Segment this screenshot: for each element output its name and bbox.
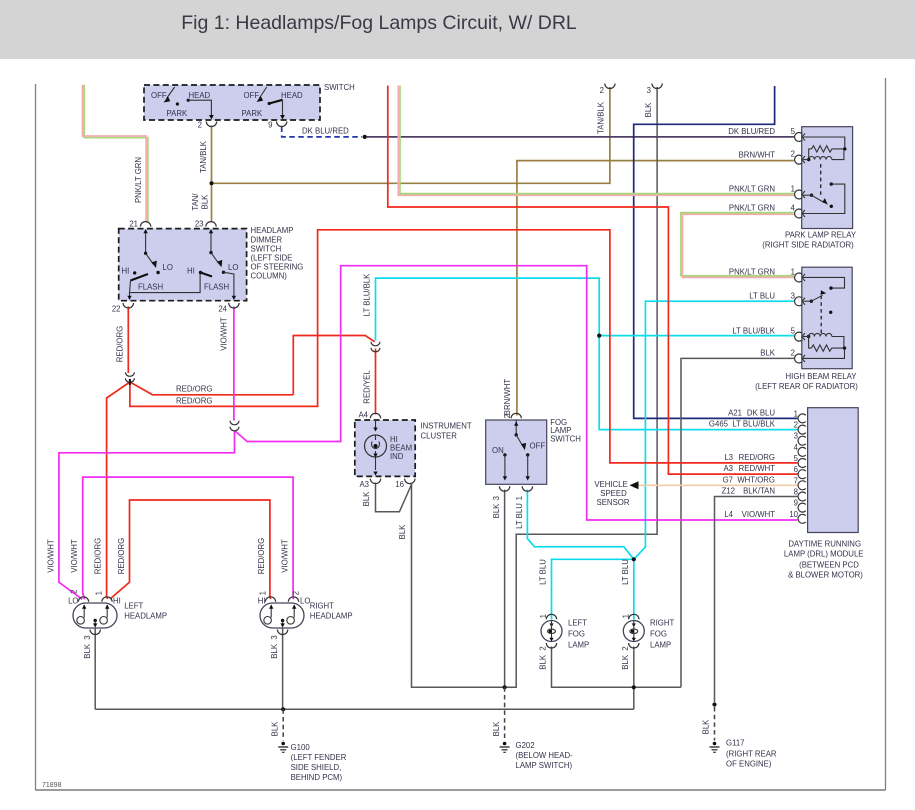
svg-text:A21: A21: [728, 409, 742, 418]
svg-text:HIGH BEAM RELAY: HIGH BEAM RELAY: [786, 372, 858, 381]
svg-text:BLK/TAN: BLK/TAN: [743, 487, 775, 496]
svg-text:RIGHT: RIGHT: [650, 619, 674, 628]
svg-text:HEADLAMP: HEADLAMP: [251, 226, 294, 235]
svg-text:VIO/WHT: VIO/WHT: [70, 539, 79, 573]
svg-text:LT BLU: LT BLU: [539, 559, 548, 585]
svg-text:PNK/LT GRN: PNK/LT GRN: [134, 157, 143, 203]
svg-text:FOG: FOG: [568, 630, 585, 639]
svg-text:8: 8: [794, 488, 798, 497]
svg-text:G7: G7: [723, 475, 733, 484]
svg-text:RED/ORG: RED/ORG: [176, 385, 212, 394]
svg-text:HEAD: HEAD: [281, 91, 303, 100]
svg-text:IND: IND: [390, 452, 404, 461]
svg-text:FOG: FOG: [650, 630, 667, 639]
svg-text:LT BLU: LT BLU: [749, 291, 775, 300]
svg-text:DIMMER: DIMMER: [251, 236, 283, 245]
svg-text:BLK 3: BLK 3: [270, 635, 279, 658]
svg-text:71898: 71898: [42, 782, 62, 789]
svg-text:2: 2: [794, 421, 798, 430]
svg-text:BLK: BLK: [362, 491, 371, 507]
svg-text:ON: ON: [492, 446, 504, 455]
svg-text:RED/ORG: RED/ORG: [176, 396, 212, 405]
svg-text:BLK: BLK: [492, 503, 501, 519]
svg-text:5: 5: [791, 127, 796, 136]
svg-text:2: 2: [600, 86, 604, 95]
svg-text:3: 3: [492, 496, 501, 500]
svg-text:BRN/WHT: BRN/WHT: [503, 379, 512, 416]
svg-text:1: 1: [794, 409, 798, 418]
svg-text:HI: HI: [122, 267, 130, 276]
svg-text:VIO/WHT: VIO/WHT: [220, 317, 229, 351]
svg-text:TAN/BLK: TAN/BLK: [199, 140, 208, 173]
svg-text:1: 1: [791, 268, 795, 277]
svg-text:LT BLU: LT BLU: [515, 503, 524, 529]
svg-text:COLUMN): COLUMN): [251, 272, 288, 281]
svg-text:LT BLU/BLK: LT BLU/BLK: [732, 420, 775, 429]
svg-text:PARK: PARK: [242, 109, 263, 118]
svg-text:BLK 3: BLK 3: [83, 635, 92, 658]
svg-text:1: 1: [515, 496, 524, 500]
svg-text:G117: G117: [726, 739, 745, 748]
svg-text:Z12: Z12: [722, 487, 735, 496]
svg-text:A3: A3: [723, 464, 733, 473]
svg-text:2: 2: [791, 349, 795, 358]
svg-text:3: 3: [791, 291, 795, 300]
svg-text:22: 22: [112, 305, 121, 314]
svg-text:4: 4: [791, 204, 796, 213]
svg-text:(BELOW HEAD-: (BELOW HEAD-: [516, 751, 574, 760]
svg-text:2: 2: [292, 591, 301, 595]
svg-text:BLK: BLK: [760, 349, 776, 358]
svg-text:7: 7: [794, 476, 798, 485]
svg-text:HEAD: HEAD: [189, 91, 211, 100]
svg-text:BLK 2: BLK 2: [539, 646, 548, 669]
svg-text:HI: HI: [258, 596, 266, 605]
svg-text:(LEFT SIDE: (LEFT SIDE: [251, 254, 293, 263]
svg-text:23: 23: [195, 220, 204, 229]
svg-text:BLK: BLK: [492, 721, 501, 737]
svg-text:DK BLU: DK BLU: [747, 409, 776, 418]
svg-text:LO: LO: [300, 596, 310, 605]
svg-text:VEHICLE: VEHICLE: [594, 480, 627, 489]
svg-text:PNK/LT GRN: PNK/LT GRN: [729, 204, 775, 213]
svg-text:LO: LO: [228, 263, 238, 272]
svg-text:RED/ORG: RED/ORG: [117, 538, 126, 574]
svg-text:16: 16: [395, 480, 404, 489]
svg-text:PARK LAMP RELAY: PARK LAMP RELAY: [785, 231, 857, 240]
svg-text:3: 3: [794, 432, 798, 441]
svg-text:9: 9: [268, 121, 272, 130]
svg-text:PNK/LT GRN: PNK/LT GRN: [729, 185, 775, 194]
svg-text:4: 4: [794, 443, 799, 452]
svg-text:DK BLU/RED: DK BLU/RED: [728, 127, 775, 136]
svg-text:DK BLU/RED: DK BLU/RED: [302, 127, 349, 136]
svg-text:3: 3: [647, 86, 651, 95]
svg-text:SWITCH: SWITCH: [251, 245, 282, 254]
svg-text:LAMP SWITCH): LAMP SWITCH): [516, 761, 573, 770]
svg-text:G465: G465: [709, 420, 729, 429]
svg-text:RED/YEL: RED/YEL: [363, 370, 372, 404]
svg-text:G100: G100: [291, 743, 311, 752]
svg-text:HI: HI: [187, 267, 195, 276]
svg-text:LEFT: LEFT: [568, 619, 587, 628]
svg-text:1: 1: [95, 591, 104, 595]
svg-text:TAN/: TAN/: [191, 193, 200, 211]
svg-text:L4: L4: [724, 510, 733, 519]
svg-text:LO: LO: [68, 596, 78, 605]
svg-text:(LEFT REAR OF RADIATOR): (LEFT REAR OF RADIATOR): [755, 382, 858, 391]
svg-text:RIGHT: RIGHT: [310, 602, 334, 611]
svg-text:LAMP: LAMP: [568, 641, 589, 650]
svg-text:OFF: OFF: [530, 441, 546, 450]
svg-text:BRN/WHT: BRN/WHT: [739, 151, 776, 160]
svg-text:LO: LO: [163, 263, 173, 272]
svg-text:(BETWEEN PCD: (BETWEEN PCD: [799, 561, 859, 570]
svg-text:1: 1: [791, 185, 795, 194]
svg-text:TAN/BLK: TAN/BLK: [597, 101, 606, 134]
svg-text:RED/WHT: RED/WHT: [739, 464, 776, 473]
svg-text:9: 9: [794, 499, 798, 508]
svg-text:LAMP (DRL) MODULE: LAMP (DRL) MODULE: [784, 550, 864, 559]
svg-text:LT BLU/BLK: LT BLU/BLK: [363, 273, 372, 316]
svg-text:FLASH: FLASH: [204, 283, 229, 292]
svg-text:2: 2: [791, 150, 795, 159]
svg-text:BLK 2: BLK 2: [621, 646, 630, 669]
svg-text:1: 1: [539, 614, 548, 618]
svg-text:INSTRUMENT: INSTRUMENT: [421, 422, 472, 431]
svg-text:1: 1: [259, 591, 268, 595]
svg-text:OF STEERING: OF STEERING: [251, 263, 304, 272]
svg-text:BLK: BLK: [702, 719, 711, 735]
svg-text:5: 5: [794, 454, 799, 463]
svg-text:& BLOWER MOTOR): & BLOWER MOTOR): [788, 571, 863, 580]
svg-text:OFF: OFF: [151, 91, 167, 100]
svg-text:RED/ORG: RED/ORG: [116, 326, 125, 362]
svg-text:6: 6: [794, 465, 798, 474]
svg-text:BLK: BLK: [644, 102, 653, 118]
svg-text:PARK: PARK: [167, 109, 188, 118]
svg-text:RED/ORG: RED/ORG: [739, 453, 775, 462]
svg-text:2: 2: [198, 121, 202, 130]
svg-text:LT BLU/BLK: LT BLU/BLK: [732, 327, 775, 336]
svg-text:SENSOR: SENSOR: [597, 498, 630, 507]
svg-text:FLASH: FLASH: [138, 283, 163, 292]
svg-text:A4: A4: [358, 411, 368, 420]
svg-text:SIDE SHIELD,: SIDE SHIELD,: [291, 763, 342, 772]
svg-text:(RIGHT REAR: (RIGHT REAR: [726, 750, 777, 759]
svg-text:DAYTIME RUNNING: DAYTIME RUNNING: [788, 540, 861, 549]
svg-text:VIO/WHT: VIO/WHT: [281, 539, 290, 573]
svg-text:(RIGHT SIDE RADIATOR): (RIGHT SIDE RADIATOR): [762, 241, 854, 250]
svg-text:24: 24: [218, 305, 227, 314]
svg-text:HEADLAMP: HEADLAMP: [310, 612, 353, 621]
svg-text:Fig 1: Headlamps/Fog Lamps Cir: Fig 1: Headlamps/Fog Lamps Circuit, W/ D…: [181, 12, 577, 34]
svg-text:OFF: OFF: [244, 91, 260, 100]
svg-text:HEADLAMP: HEADLAMP: [124, 612, 167, 621]
svg-text:OF ENGINE): OF ENGINE): [726, 760, 772, 769]
svg-text:HI: HI: [113, 596, 121, 605]
svg-text:LT BLU: LT BLU: [621, 559, 630, 585]
svg-text:BLK: BLK: [398, 524, 407, 540]
svg-text:10: 10: [789, 510, 798, 519]
svg-text:BEHIND PCM): BEHIND PCM): [291, 773, 343, 782]
svg-text:1: 1: [622, 614, 631, 618]
svg-text:SWITCH: SWITCH: [550, 434, 581, 443]
svg-text:CLUSTER: CLUSTER: [421, 432, 458, 441]
svg-text:A3: A3: [359, 480, 369, 489]
svg-text:VIO/WHT: VIO/WHT: [47, 539, 56, 573]
svg-text:2: 2: [70, 590, 79, 594]
svg-text:SPEED: SPEED: [600, 489, 627, 498]
svg-text:BLK: BLK: [271, 721, 280, 737]
svg-text:RED/ORG: RED/ORG: [257, 538, 266, 574]
svg-text:LAMP: LAMP: [650, 641, 671, 650]
svg-text:(LEFT FENDER: (LEFT FENDER: [291, 753, 347, 762]
svg-text:21: 21: [129, 220, 138, 229]
svg-text:SWITCH: SWITCH: [324, 83, 355, 92]
svg-text:5: 5: [791, 327, 796, 336]
svg-text:BLK: BLK: [201, 194, 210, 210]
svg-text:VIO/WHT: VIO/WHT: [742, 510, 776, 519]
svg-text:PNK/LT GRN: PNK/LT GRN: [729, 268, 775, 277]
svg-text:L3: L3: [724, 453, 733, 462]
svg-text:RED/ORG: RED/ORG: [94, 538, 103, 574]
svg-text:G202: G202: [516, 741, 535, 750]
svg-text:WHT/ORG: WHT/ORG: [737, 475, 775, 484]
svg-text:LEFT: LEFT: [124, 602, 143, 611]
